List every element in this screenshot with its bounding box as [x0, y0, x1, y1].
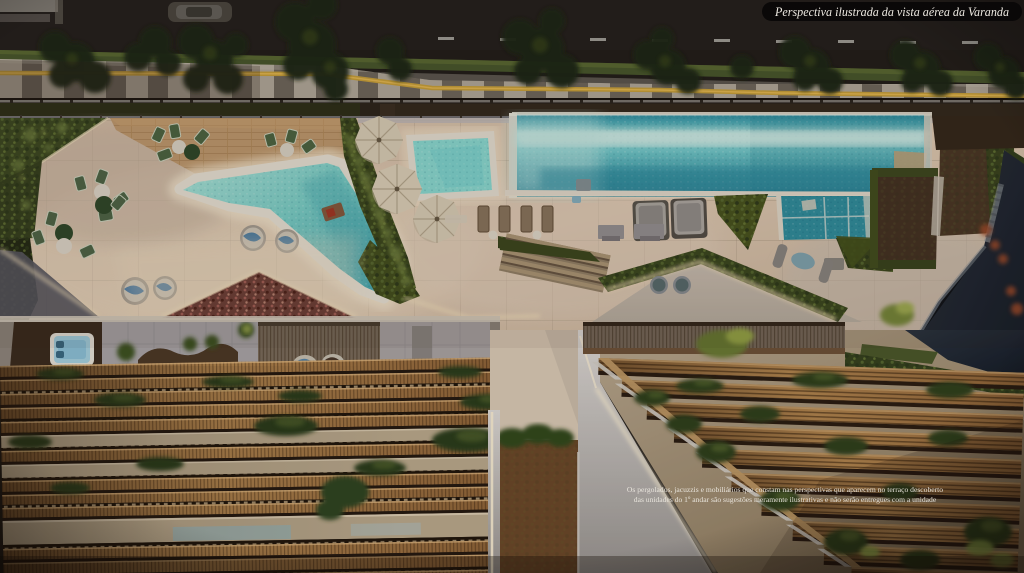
svg-text:Perspectiva ilustrada da vista: Perspectiva ilustrada da vista aérea da … [774, 4, 1009, 19]
svg-text:das unidades do 1º andar são s: das unidades do 1º andar são sugestões m… [634, 495, 937, 504]
svg-text:Os pergolados, jacuzzis e mobi: Os pergolados, jacuzzis e mobiliários qu… [627, 485, 943, 494]
